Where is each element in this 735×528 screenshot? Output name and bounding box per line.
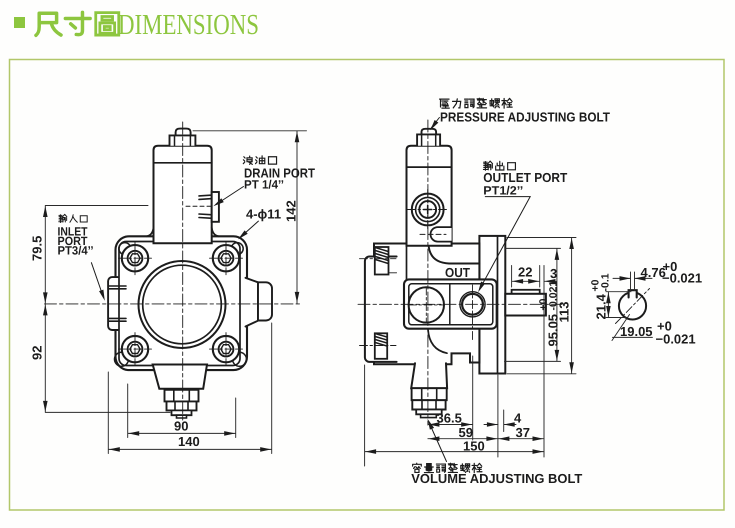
svg-text:140: 140 (178, 434, 200, 449)
svg-text:PT3/4’’: PT3/4’’ (58, 244, 94, 258)
svg-text:142: 142 (284, 200, 299, 222)
svg-text:OUT: OUT (445, 265, 470, 280)
svg-text:19.05: 19.05 (620, 324, 653, 339)
svg-text:21.4: 21.4 (594, 293, 609, 319)
svg-text:113: 113 (557, 302, 572, 323)
svg-text:-0.1: -0.1 (600, 273, 612, 291)
svg-text:59: 59 (459, 425, 473, 440)
svg-text:22: 22 (518, 264, 532, 279)
svg-text:PT 1/4’’: PT 1/4’’ (244, 177, 284, 191)
svg-text:37: 37 (516, 425, 530, 440)
svg-text:92: 92 (30, 346, 45, 360)
svg-text:36.5: 36.5 (437, 410, 462, 425)
svg-text:DIMENSIONS: DIMENSIONS (118, 9, 259, 41)
svg-text:PRESSURE ADJUSTING BOLT: PRESSURE ADJUSTING BOLT (440, 110, 610, 125)
svg-text:79.5: 79.5 (30, 236, 45, 261)
svg-text:−0.021: −0.021 (656, 332, 696, 347)
svg-text:3: 3 (550, 266, 557, 281)
svg-text:−0.021: −0.021 (662, 271, 702, 286)
svg-text:150: 150 (463, 439, 485, 454)
svg-text:4-ϕ11: 4-ϕ11 (246, 207, 281, 222)
svg-text:90: 90 (174, 419, 188, 434)
svg-text:4: 4 (514, 410, 522, 425)
svg-text:PT1/2’’: PT1/2’’ (483, 183, 523, 197)
svg-text:VOLUME ADJUSTING BOLT: VOLUME ADJUSTING BOLT (411, 471, 582, 486)
